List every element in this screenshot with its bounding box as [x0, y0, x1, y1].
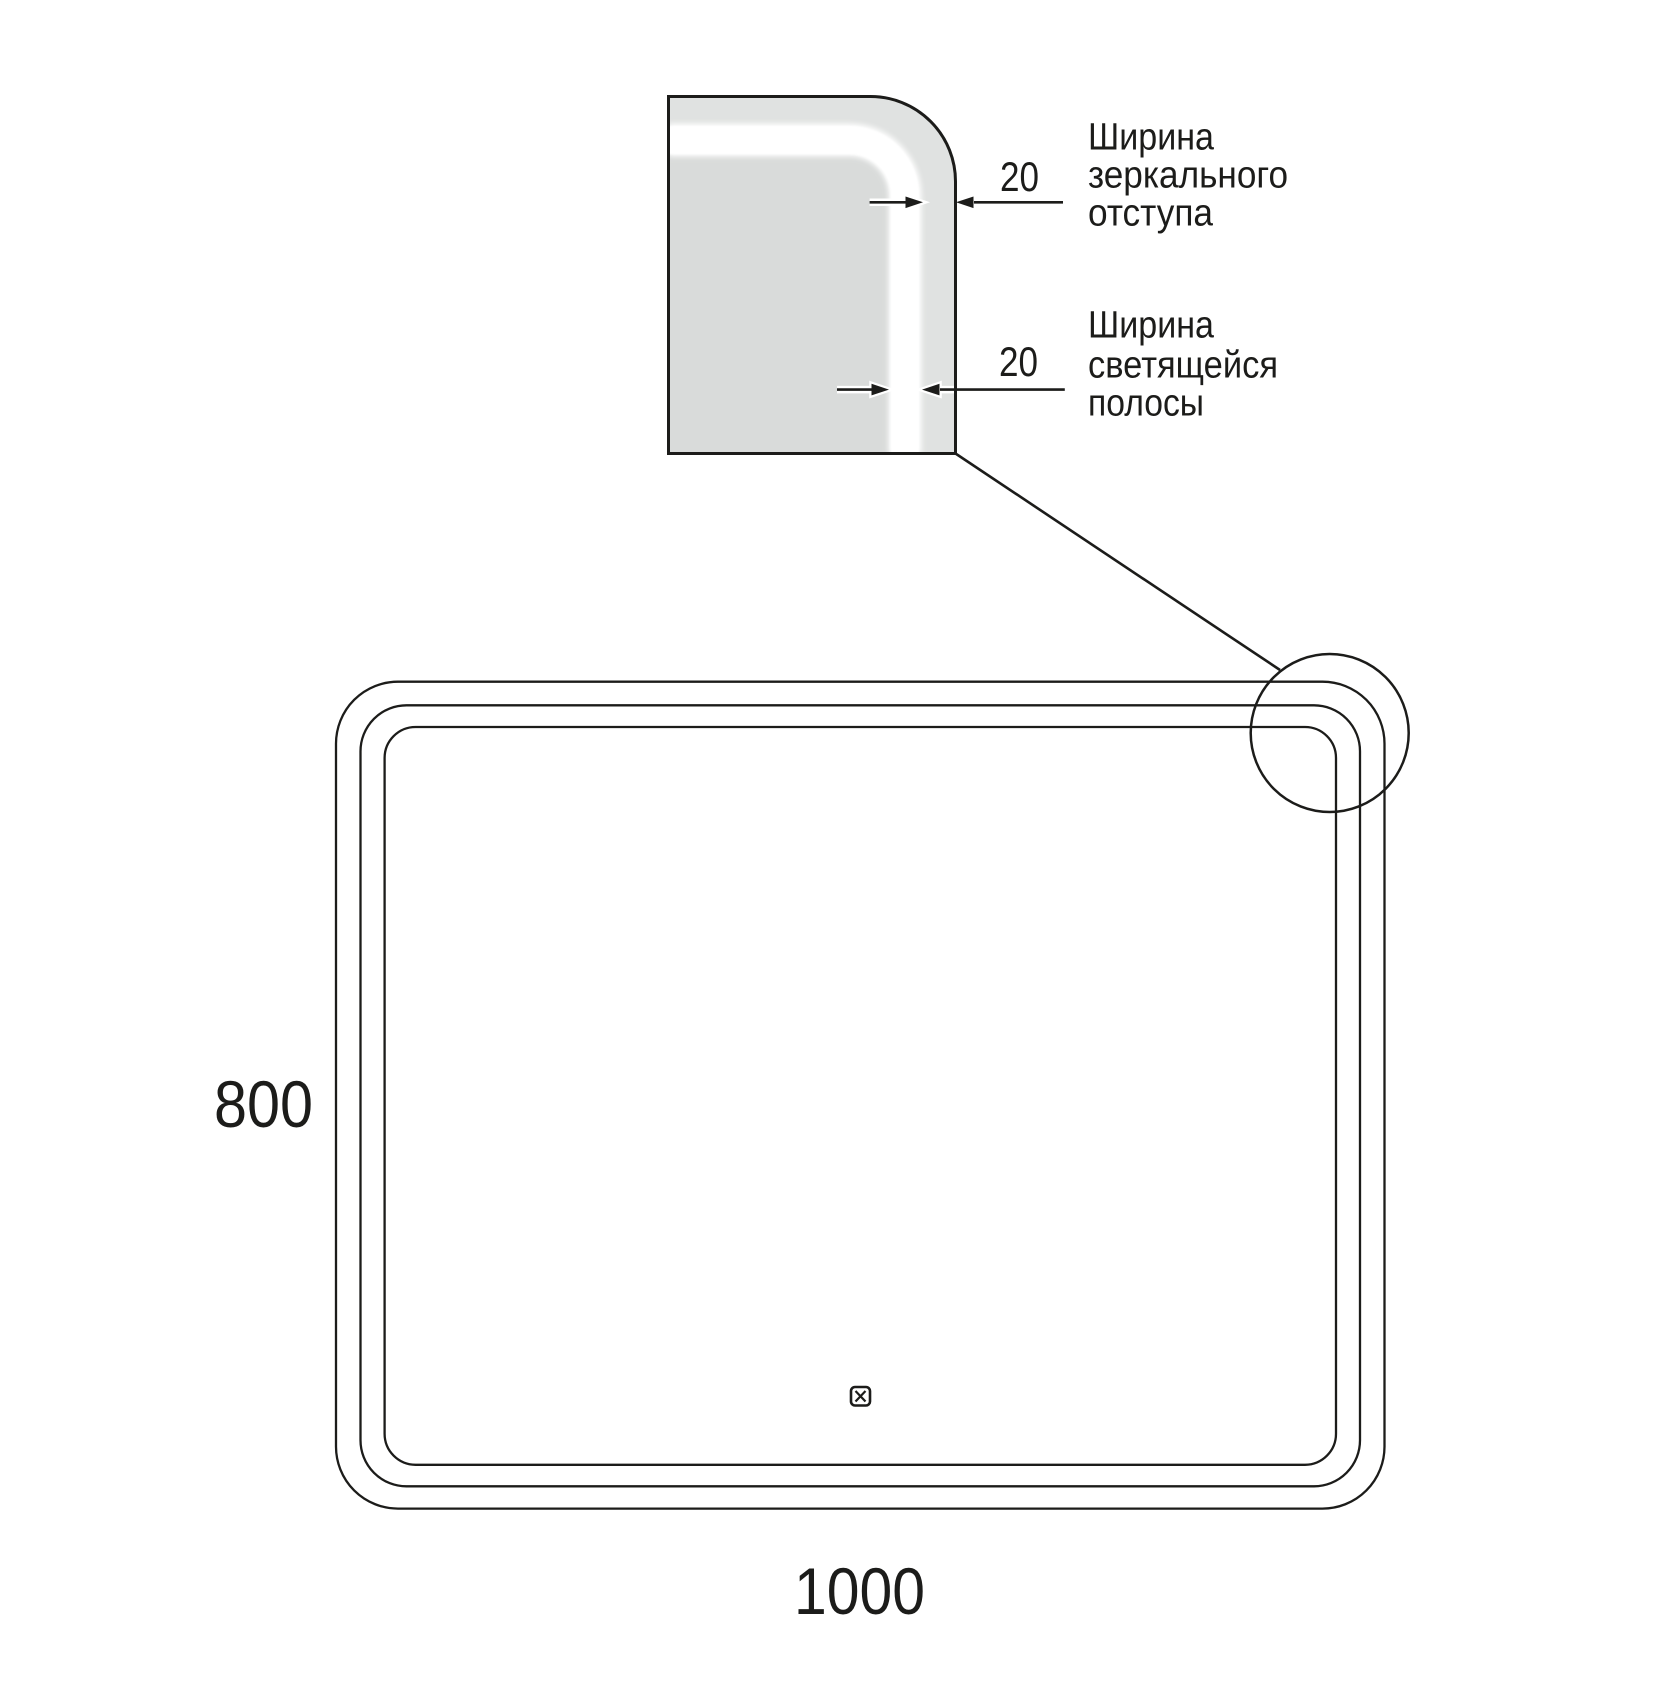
svg-text:20: 20: [1000, 153, 1039, 200]
svg-text:Ширина: Ширина: [1088, 305, 1215, 347]
svg-text:светящейся: светящейся: [1088, 345, 1278, 387]
svg-text:800: 800: [214, 1067, 313, 1141]
svg-text:зеркального: зеркального: [1088, 155, 1288, 197]
svg-text:Ширина: Ширина: [1088, 117, 1215, 159]
svg-text:20: 20: [999, 338, 1038, 385]
svg-text:отступа: отступа: [1088, 193, 1214, 235]
svg-text:полосы: полосы: [1088, 383, 1204, 425]
svg-text:1000: 1000: [794, 1554, 925, 1628]
